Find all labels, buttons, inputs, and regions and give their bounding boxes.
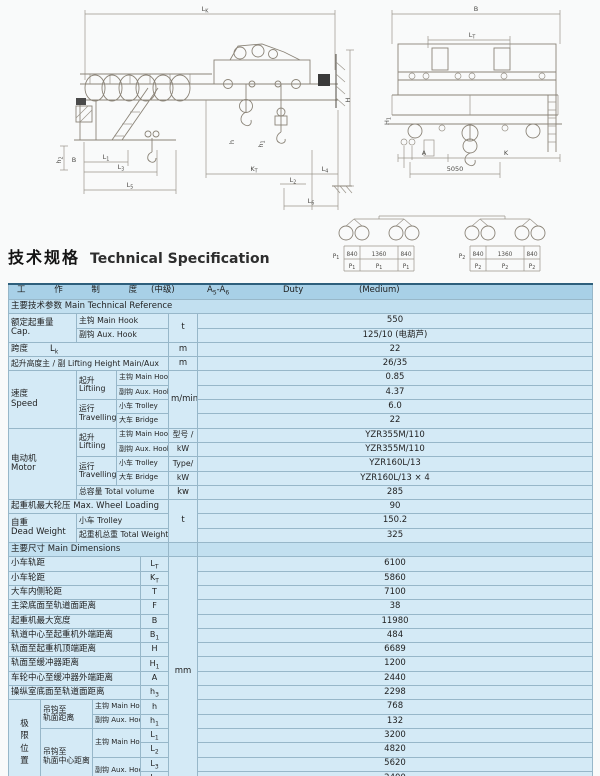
limits-hook-rail-label: 吊钩至轨面距离 [41,700,93,729]
end-buffer [318,74,330,86]
limit-symbol: L2 [141,743,169,757]
limit-value: 132 [198,714,593,728]
dim-label-b: B [474,5,478,13]
title-zh: 技术规格 [8,248,80,267]
motor-unit-kw: kW [169,442,198,456]
limit-value: 2400 [198,771,593,776]
speed-aux-hook: 副钩 Aux. Hook [117,385,169,399]
duty-class: A5-A6 [207,286,229,295]
wheel-loading-value: 90 [198,500,593,514]
end-view: B LT [383,5,562,178]
wheel-load-p2-label: P2 [459,254,466,261]
limit-symbol: h [141,700,169,714]
dead-weight-total-value: 325 [198,528,593,542]
table-row: 小车轨距 LT mm 6100 [9,557,593,571]
dim-label: 主梁底面至轨道面距离 [9,600,141,614]
dim-symbol: T [141,585,169,599]
dim-label: 车轮中心至缓冲器外端距离 [9,671,141,685]
dim-label: 轨面至缓冲器距离 [9,657,141,671]
dim-value: 6100 [198,557,593,571]
dead-weight-trolley: 小车 Trolley [77,514,169,528]
aux-hook [275,84,287,143]
ladder [548,95,556,152]
dim-value: 6689 [198,643,593,657]
duty-grade: (中级) [151,286,175,295]
motor-travel-label: 运行Travelling [77,457,117,486]
cap-aux-hook: 副钩 Aux. Hook [77,328,169,342]
title-en: Technical Specification [90,251,270,267]
speed-aux-value: 4.37 [198,385,593,399]
dim-label-l1: L1 [103,153,110,163]
wheel-spacing-840: 840 [526,252,537,258]
limits-main-hook: 主钩 Main Hook [93,700,141,714]
cap-aux-value: 125/10 (电葫芦) [198,328,593,342]
limit-value: 4820 [198,743,593,757]
speed-main-hook: 主钩 Main Hook [117,371,169,385]
dim-label-l5: L5 [127,181,134,191]
motor-total-value: 285 [198,485,593,499]
table-row: 总容量 Total volume kw 285 [9,485,593,499]
table-row: 车轮中心至缓冲器外端距离 A 2440 [9,671,593,685]
dim-value: 7100 [198,585,593,599]
motor-trolley-value: YZR160L/13 [198,457,593,471]
speed-bridge-value: 22 [198,414,593,428]
speed-unit: m/min [169,371,198,428]
dim-label-lk: LK [202,5,210,15]
trolley [214,44,310,89]
dim-symbol: B1 [141,628,169,642]
dim-value: 2440 [198,671,593,685]
main-hook [240,84,253,126]
table-row: 运行Travelling 小车 Trolley Type/ YZR160L/13 [9,457,593,471]
dim-symbol: KT [141,571,169,585]
table-row: 起重机最大宽度 B 11980 [9,614,593,628]
dim-value: 1200 [198,657,593,671]
speed-lifting-label: 起升Liftiing [77,371,117,400]
limit-value: 3200 [198,728,593,742]
empty-cell [169,543,198,557]
duty-medium: (Medium) [359,286,400,295]
limit-value: 768 [198,700,593,714]
spec-table: 工 作 制 度 (中级) A5-A6 Duty (Medium) 主要技术参数 … [8,283,593,776]
dim-value: 2298 [198,686,593,700]
dim-label-gauge: 5050 [447,165,464,173]
dead-weight-total: 起重机总重 Total Weight [77,528,169,542]
dim-label-hb: h1 [257,140,267,147]
dim-symbol: h3 [141,686,169,700]
speed-trolley: 小车 Trolley [117,400,169,414]
dim-label-h2: h2 [55,156,65,163]
table-row: 运行Travelling 小车 Trolley 6.0 [9,400,593,414]
cap-main-value: 550 [198,314,593,328]
dim-label-l6: L6 [308,197,315,207]
table-row: 轨道中心至起重机外端距离 B1 484 [9,628,593,642]
table-row: 吊钩至轨面中心距离 主钩 Main Hook L1 3200 [9,728,593,742]
page-title: 技术规格Technical Specification [8,244,408,268]
duty-work-system: 工 作 制 度 [17,286,150,295]
speed-main-value: 0.85 [198,371,593,385]
table-row: 自重Dead Weight 小车 Trolley 150.2 [9,514,593,528]
duty-en: Duty [283,286,303,295]
table-row: 轨面至缓冲器距离 H1 1200 [9,657,593,671]
motor-total-label: 总容量 Total volume [77,485,169,499]
motor-main-value: YZR355M/110 [198,428,593,442]
empty-cell [198,543,593,557]
limit-symbol: L1 [141,728,169,742]
table-row: 主要技术参数 Main Technical Reference [9,300,593,314]
dim-label: 小车轮距 [9,571,141,585]
table-row: 操纵室底面至轨道面距离 h3 2298 [9,686,593,700]
dim-symbol: H1 [141,657,169,671]
dim-symbol: H [141,643,169,657]
dead-weight-label: 自重Dead Weight [9,514,77,543]
cable-coils [85,75,190,101]
table-row: 大车内侧轮距 T 7100 [9,585,593,599]
dim-label-ha: h [228,140,236,144]
dim-label: 起重机最大宽度 [9,614,141,628]
table-row: 跨度Lk m 22 [9,342,593,356]
table-row: 工 作 制 度 (中级) A5-A6 Duty (Medium) [9,284,593,300]
dim-label-b-left: B [72,156,76,164]
limits-aux-hook: 副钩 Aux. Hook [93,714,141,728]
dim-label-k: K [504,149,509,157]
motor-bridge: 大车 Bridge [117,471,169,485]
lifting-height-unit: m [169,357,198,371]
table-row: 额定起重量Cap. 主钩 Main Hook t 550 [9,314,593,328]
wheel-load-p2: P2 [529,264,536,271]
weight-unit: t [169,500,198,543]
technical-drawing: LK [0,0,600,274]
motor-aux-value: YZR355M/110 [198,442,593,456]
dim-value: 484 [198,628,593,642]
dim-symbol: B [141,614,169,628]
motor-lifting-label: 起升Liftiing [77,428,117,457]
wheel-load-p2: P2 [502,264,509,271]
table-row: 副钩 Aux. Hook h1 132 [9,714,593,728]
duty-header: 工 作 制 度 (中级) A5-A6 Duty (Medium) [9,284,593,300]
lifting-height-label: 起升高度主 / 副 Lifting Height Main/Aux [9,357,169,371]
dim-label: 轨面至起重机顶端距离 [9,643,141,657]
speed-label: 速度Speed [9,371,77,428]
table-row: 轨面至起重机顶端距离 H 6689 [9,643,593,657]
dim-value: 5860 [198,571,593,585]
limit-value: 5620 [198,757,593,771]
stairs [112,88,158,140]
span-unit: m [169,342,198,356]
speed-bridge: 大车 Bridge [117,414,169,428]
motor-unit-kw: kW [169,471,198,485]
dim-label-lt: LT [469,31,476,41]
table-row: 起重机总重 Total Weight 325 [9,528,593,542]
table-row: 极限位置 吊钩至轨面距离 主钩 Main Hook h 768 [9,700,593,714]
limit-symbol: h1 [141,714,169,728]
limits-main-hook: 主钩 Main Hook [93,728,141,757]
dim-label-kt: KT [250,165,257,175]
motor-bridge-value: YZR160L/13 × 4 [198,471,593,485]
limits-vertical-label: 极限位置 [9,700,41,776]
table-row: 速度Speed 起升Liftiing 主钩 Main Hook m/min 0.… [9,371,593,385]
dim-label-a: A [422,149,427,157]
limit-symbol: L3 [141,757,169,771]
cap-label: 额定起重量Cap. [9,314,77,343]
cap-unit: t [169,314,198,343]
wheel-spacing-840: 840 [472,252,483,258]
span-value: 22 [198,342,593,356]
dim-symbol: F [141,600,169,614]
motor-total-unit: kw [169,485,198,499]
dim-label-l4: L4 [322,165,329,175]
table-row: 主梁底面至轨道面距离 F 38 [9,600,593,614]
cap-main-hook: 主钩 Main Hook [77,314,169,328]
table-row: 主要尺寸 Main Dimensions [9,543,593,557]
dim-label-h: H [344,97,352,102]
motor-unit-type: Type/ [169,457,198,471]
section-main-dimensions: 主要尺寸 Main Dimensions [9,543,169,557]
table-row: 起升高度主 / 副 Lifting Height Main/Aux m 26/3… [9,357,593,371]
dead-weight-trolley-value: 150.2 [198,514,593,528]
section-main-technical: 主要技术参数 Main Technical Reference [9,300,593,314]
table-row: 起重机最大轮压 Max. Wheel Loading t 90 [9,500,593,514]
table-row: 副钩 Aux. Hook 125/10 (电葫芦) [9,328,593,342]
motor-main-hook: 主钩 Main Hook [117,428,169,442]
dim-label: 小车轨距 [9,557,141,571]
wheel-loading-label: 起重机最大轮压 Max. Wheel Loading [9,500,169,514]
dim-value: 11980 [198,614,593,628]
dim-value: 38 [198,600,593,614]
speed-trolley-value: 6.0 [198,400,593,414]
side-view: LK [55,5,354,210]
limits-hook-center-label: 吊钩至轨面中心距离 [41,728,93,776]
dim-label-l3: L3 [118,163,125,173]
wheel-load-p2: P2 [475,264,482,271]
limits-aux-hook: 副钩 Aux. Hook [93,757,141,776]
dim-symbol: LT [141,557,169,571]
dim-label: 操纵室底面至轨道面距离 [9,686,141,700]
motor-unit-model: 型号 / [169,428,198,442]
motor-label: 电动机Motor [9,428,77,499]
lifting-height-value: 26/35 [198,357,593,371]
motor-trolley: 小车 Trolley [117,457,169,471]
dim-label: 轨道中心至起重机外端距离 [9,628,141,642]
span-label: 跨度Lk [9,342,169,356]
dim-symbol: A [141,671,169,685]
wheel-spacing-1360: 1360 [498,252,513,258]
dims-unit: mm [169,557,198,776]
dim-label: 大车内侧轮距 [9,585,141,599]
speed-travel-label: 运行Travelling [77,400,117,429]
limit-symbol: L4 [141,771,169,776]
table-row: 副钩 Aux. Hook L3 5620 [9,757,593,771]
crane-drawing: LK [0,0,600,274]
table-row: 电动机Motor 起升Liftiing 主钩 Main Hook 型号 / YZ… [9,428,593,442]
motor-aux-hook: 副钩 Aux. Hook [117,442,169,456]
catalog-page: LK [0,0,600,776]
table-row: 小车轮距 KT 5860 [9,571,593,585]
